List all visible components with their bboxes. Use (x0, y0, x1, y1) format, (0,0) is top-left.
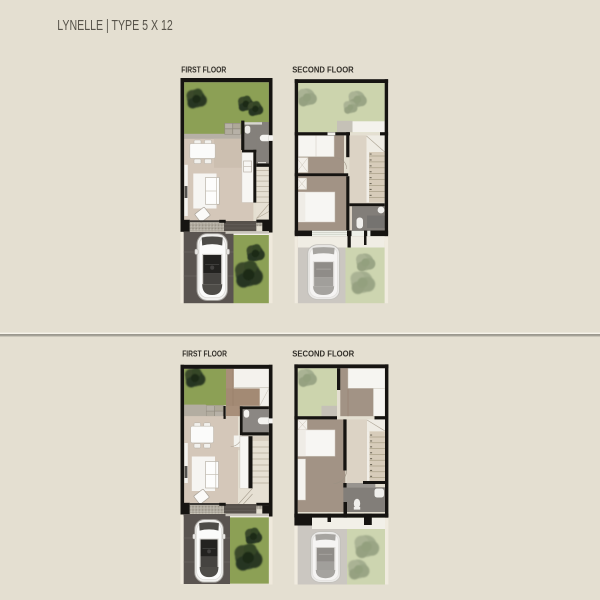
svg-text:LYNELLE | TYPE 5 X 12: LYNELLE | TYPE 5 X 12 (57, 17, 173, 34)
svg-text:SECOND FLOOR: SECOND FLOOR (292, 348, 354, 358)
svg-text:SECOND FLOOR: SECOND FLOOR (292, 65, 354, 75)
svg-text:FIRST FLOOR: FIRST FLOOR (182, 349, 227, 359)
svg-text:FIRST FLOOR: FIRST FLOOR (181, 65, 226, 75)
